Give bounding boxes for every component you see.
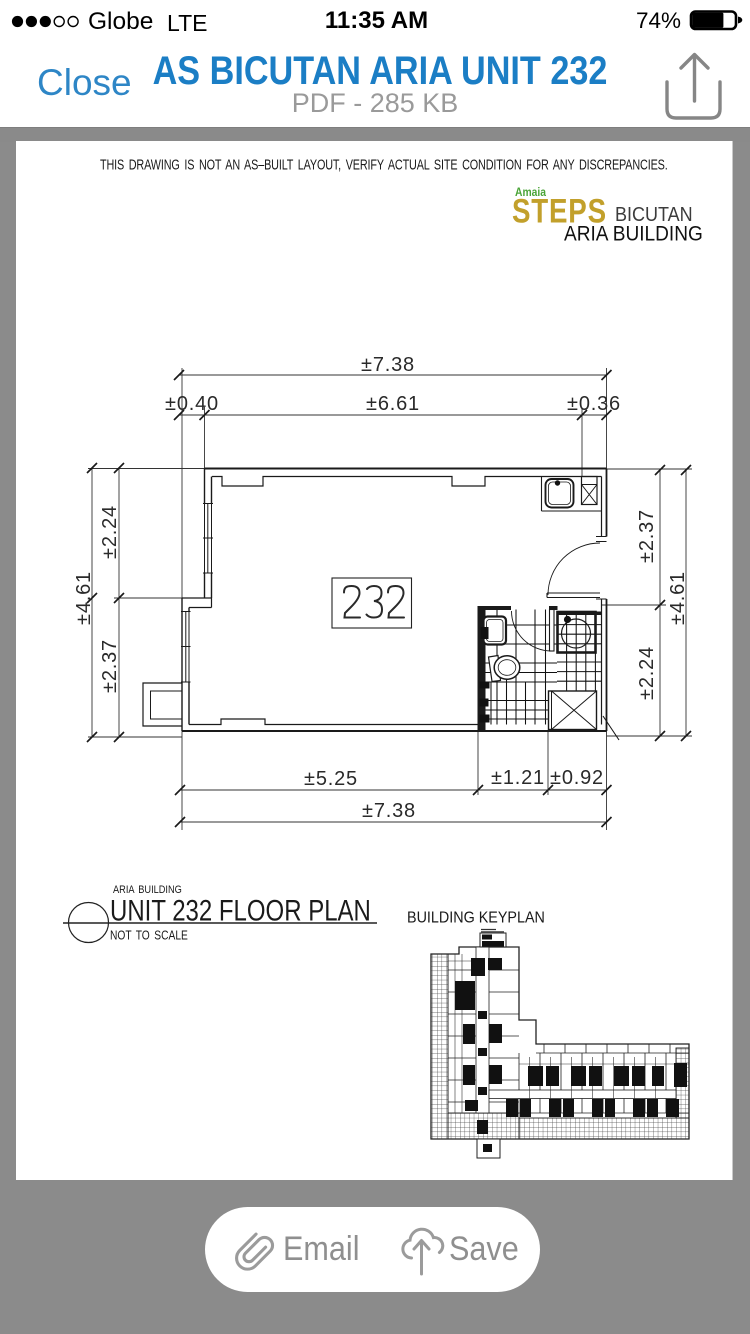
svg-text:±2.37: ±2.37 — [99, 639, 121, 693]
svg-text:±0.40: ±0.40 — [165, 393, 219, 415]
svg-text:±0.36: ±0.36 — [567, 393, 621, 415]
svg-text:±4.61: ±4.61 — [667, 571, 689, 625]
svg-text:±2.37: ±2.37 — [636, 509, 658, 563]
svg-text:±2.24: ±2.24 — [99, 505, 121, 559]
svg-text:±7.38: ±7.38 — [362, 800, 416, 822]
svg-text:THIS DRAWING IS NOT AN AS–BUIL: THIS DRAWING IS NOT AN AS–BUILT LAYOUT, … — [100, 156, 668, 173]
svg-text:NOT TO SCALE: NOT TO SCALE — [110, 930, 188, 943]
svg-text:±1.21: ±1.21 — [491, 767, 545, 789]
svg-text:±6.61: ±6.61 — [366, 393, 420, 415]
svg-text:±4.61: ±4.61 — [73, 571, 95, 625]
svg-text:±5.25: ±5.25 — [304, 768, 358, 790]
svg-text:±2.24: ±2.24 — [636, 646, 658, 700]
svg-text:BUILDING KEYPLAN: BUILDING KEYPLAN — [407, 909, 545, 927]
svg-text:±7.38: ±7.38 — [361, 354, 415, 376]
svg-text:±0.92: ±0.92 — [550, 767, 604, 789]
svg-text:ARIA BUILDING: ARIA BUILDING — [564, 223, 703, 246]
svg-text:UNIT 232 FLOOR PLAN: UNIT 232 FLOOR PLAN — [110, 893, 371, 927]
